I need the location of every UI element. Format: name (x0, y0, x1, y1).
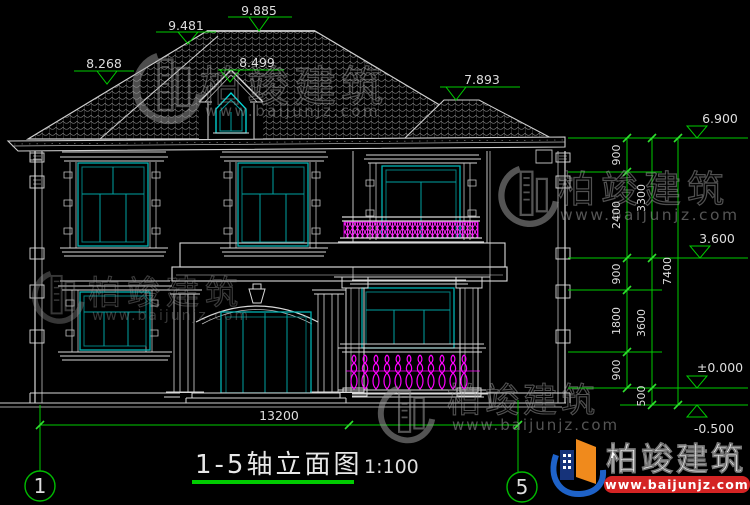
logo-brand-text: 柏竣建筑 (606, 440, 746, 478)
elev-7893: 7.893 (464, 72, 500, 87)
watermark-site: www.baijunjz.com (560, 206, 740, 224)
dim-900-3: 900 (610, 360, 623, 381)
watermark-logo-icon (381, 389, 432, 441)
watermark-brand: 柏竣建筑 (447, 381, 599, 421)
brand-logo: 柏竣建筑 www.baijunjz.com (553, 439, 750, 494)
entrance-steps (180, 393, 352, 407)
watermark-site: www.baijunjz.com (205, 102, 380, 120)
watermark-brand: 柏竣建筑 (558, 168, 730, 211)
elev-0000: ±0.000 (697, 360, 743, 375)
dim-900-1: 900 (610, 145, 623, 166)
drawing-scale: 1:100 (364, 456, 419, 478)
title-underline (192, 480, 354, 484)
watermark-site: www.baijunjz.com (452, 416, 619, 434)
elev-m0500: -0.500 (694, 421, 734, 436)
axis-number-right: 5 (516, 475, 529, 499)
elev-6900: 6.900 (702, 111, 738, 126)
axis-number-left: 1 (34, 474, 47, 498)
dim-3600: 3600 (635, 309, 648, 337)
dim-500: 500 (635, 386, 648, 407)
dim-900-2: 900 (610, 264, 623, 285)
elev-3600: 3.600 (699, 231, 735, 246)
eave-fascia (8, 137, 565, 163)
watermark-brand: 柏竣建筑 (88, 273, 244, 312)
window-1f-right (350, 280, 468, 348)
logo-building-blue (560, 450, 574, 480)
logo-site-text: www.baijunjz.com (605, 477, 749, 492)
elev-9885: 9.885 (241, 3, 277, 18)
title-block: 1-5轴立面图 1:100 (192, 450, 419, 484)
elevation-drawing-canvas: 900 2400 900 1800 900 3300 3600 500 7400… (0, 0, 750, 505)
overall-width-dim: 13200 (259, 408, 299, 423)
right-elevation-markers: 6.900 3.600 ±0.000 -0.500 (687, 111, 743, 436)
window-2f-center (220, 152, 328, 256)
watermark-right: 柏竣建筑 www.baijunjz.com (501, 168, 739, 224)
entrance-door (221, 312, 311, 393)
watermark-logo-icon (501, 169, 555, 224)
dim-7400: 7400 (661, 257, 674, 285)
elev-8268: 8.268 (86, 56, 122, 71)
logo-building-orange (576, 439, 596, 484)
elev-9481: 9.481 (168, 18, 204, 33)
dim-1800: 1800 (610, 307, 623, 335)
watermark-site: www.baijunjz.com (92, 308, 250, 324)
window-2f-left (60, 152, 168, 256)
drawing-title: 1-5轴立面图 (195, 450, 362, 480)
keystone (249, 284, 265, 303)
balcony-railing (338, 217, 484, 242)
